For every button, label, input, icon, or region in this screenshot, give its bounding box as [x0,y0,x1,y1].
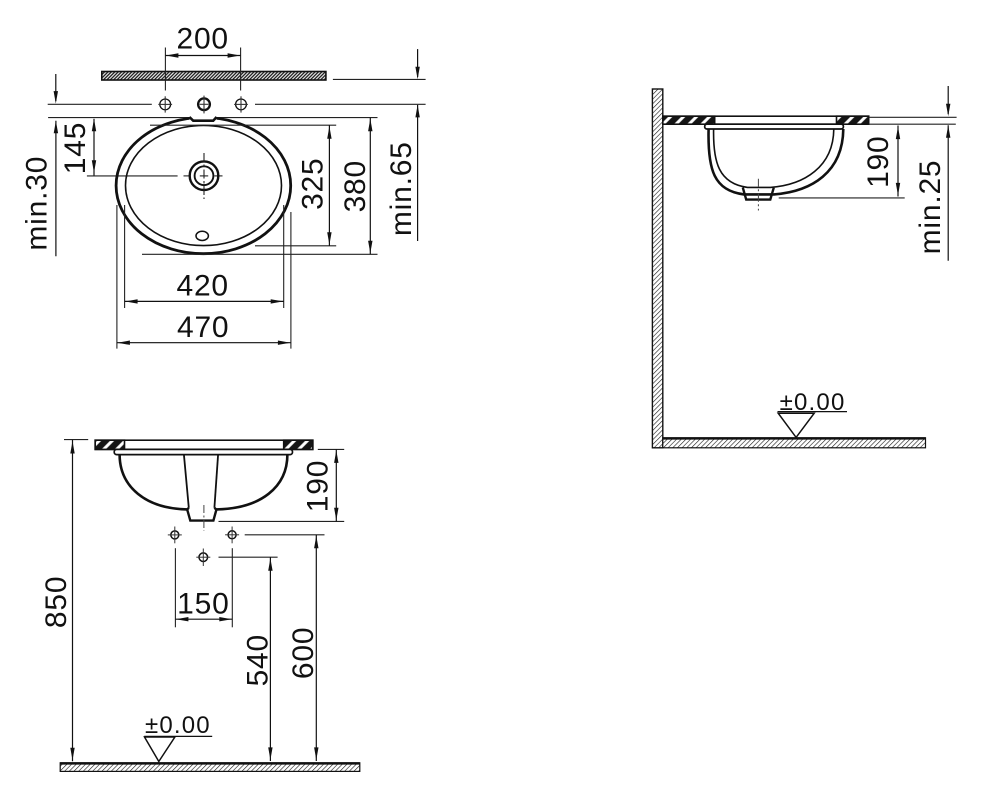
svg-text:190: 190 [862,135,895,187]
svg-text:600: 600 [287,627,320,679]
svg-text:540: 540 [242,634,275,686]
svg-text:470: 470 [177,311,229,344]
svg-text:850: 850 [40,576,73,628]
svg-text:420: 420 [176,270,228,303]
svg-text:min.25: min.25 [914,160,947,255]
svg-text:145: 145 [59,122,92,174]
svg-text:min.30: min.30 [21,156,54,251]
svg-text:±0.00: ±0.00 [145,712,211,739]
svg-text:min.65: min.65 [385,141,418,236]
svg-text:380: 380 [339,160,372,212]
svg-text:190: 190 [302,460,335,512]
svg-text:200: 200 [176,23,228,56]
svg-text:150: 150 [177,587,229,620]
svg-text:325: 325 [297,157,330,209]
